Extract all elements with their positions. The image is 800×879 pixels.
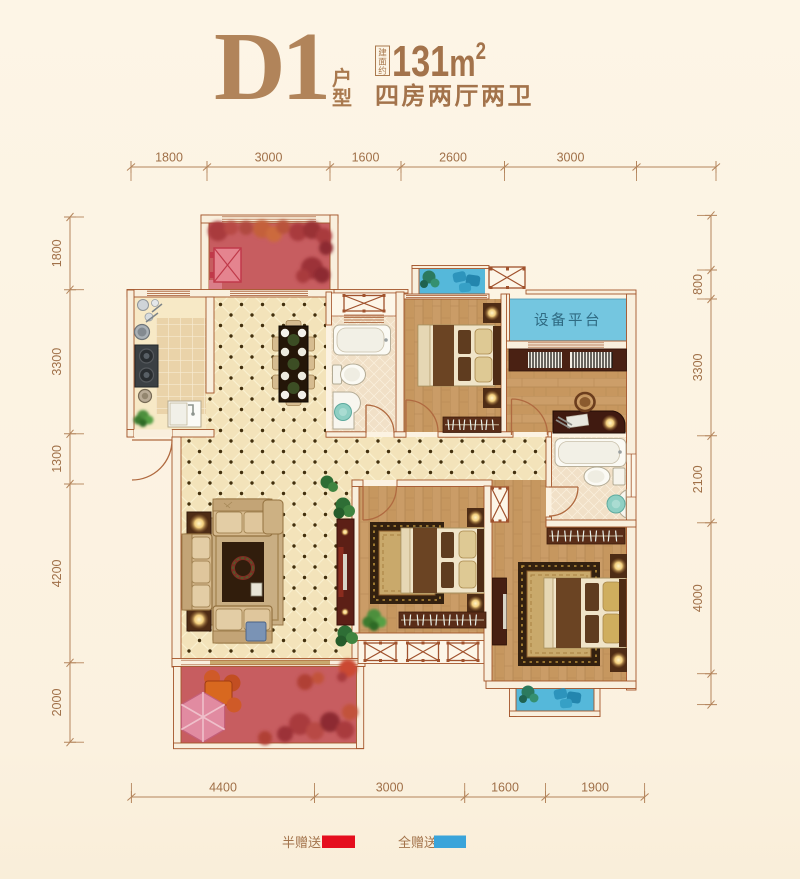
svg-text:3000: 3000 xyxy=(376,781,404,795)
svg-text:2100: 2100 xyxy=(691,465,705,493)
svg-text:800: 800 xyxy=(691,274,705,295)
svg-text:2600: 2600 xyxy=(439,151,467,165)
svg-text:1800: 1800 xyxy=(155,151,183,165)
svg-text:四房两厅两卫: 四房两厅两卫 xyxy=(375,82,534,110)
svg-text:3300: 3300 xyxy=(691,353,705,381)
svg-text:型: 型 xyxy=(332,87,352,110)
svg-text:4200: 4200 xyxy=(50,559,64,587)
svg-text:3000: 3000 xyxy=(557,151,585,165)
svg-text:4000: 4000 xyxy=(691,584,705,612)
svg-text:户: 户 xyxy=(332,66,352,90)
svg-text:半赠送: 半赠送 xyxy=(282,835,321,850)
svg-text:1800: 1800 xyxy=(50,239,64,267)
svg-text:3000: 3000 xyxy=(255,151,283,165)
svg-text:3300: 3300 xyxy=(50,348,64,376)
svg-text:2000: 2000 xyxy=(50,689,64,717)
svg-text:1300: 1300 xyxy=(50,445,64,473)
svg-text:4400: 4400 xyxy=(209,781,237,795)
svg-text:1600: 1600 xyxy=(352,151,380,165)
svg-text:全赠送: 全赠送 xyxy=(398,835,437,850)
svg-text:1600: 1600 xyxy=(491,781,519,795)
svg-text:D1: D1 xyxy=(214,13,327,120)
svg-text:131m2: 131m2 xyxy=(392,37,486,86)
svg-text:1900: 1900 xyxy=(581,781,609,795)
svg-text:约: 约 xyxy=(378,66,387,76)
svg-text:设备平台: 设备平台 xyxy=(534,312,602,329)
